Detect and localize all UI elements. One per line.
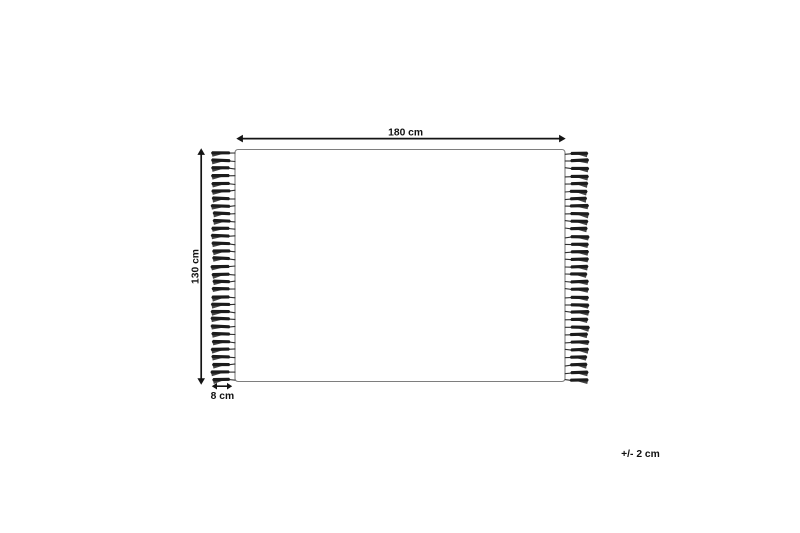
svg-text:8 cm: 8 cm [211,391,234,402]
svg-text:130 cm: 130 cm [190,249,201,284]
svg-text:180 cm: 180 cm [388,128,423,139]
svg-text:+/- 2 cm: +/- 2 cm [621,449,660,460]
